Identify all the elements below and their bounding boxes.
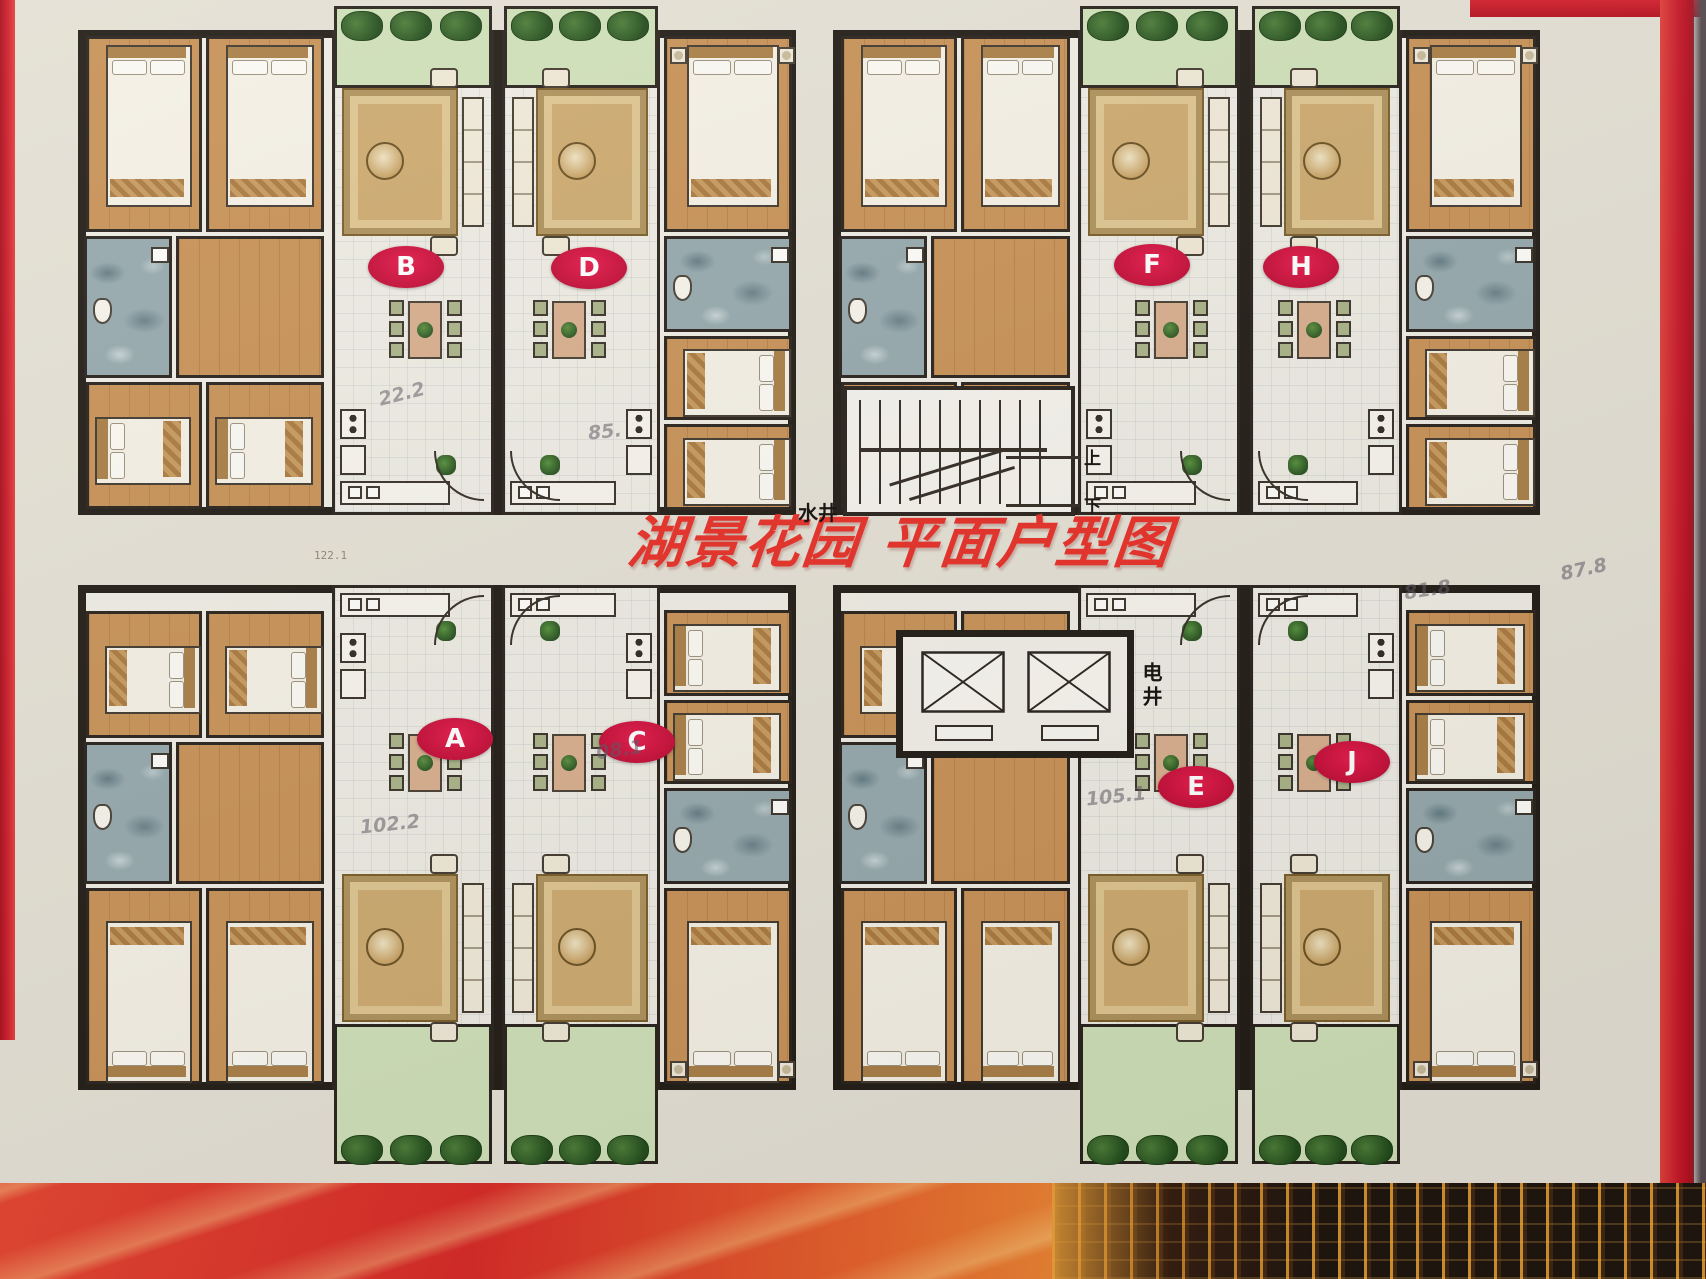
kitchen-cabinet	[1368, 669, 1394, 699]
bed-headboard	[184, 648, 195, 708]
dining-chair	[533, 300, 548, 316]
toilet	[1415, 827, 1434, 853]
sofa	[1260, 97, 1282, 227]
dining-chair	[1193, 733, 1208, 749]
nightstand	[670, 1061, 687, 1078]
bed-blanket	[1434, 927, 1514, 945]
balcony-tree	[1351, 11, 1393, 41]
unit-label-J: J	[1314, 741, 1390, 783]
balcony	[334, 6, 492, 88]
bedroom	[86, 382, 202, 509]
armchair	[542, 1022, 570, 1042]
toilet	[93, 804, 112, 830]
bathroom-sink	[906, 247, 924, 263]
kitchen-sink	[348, 598, 362, 611]
bed-pillow	[110, 423, 125, 450]
bed-pillow	[1022, 60, 1054, 75]
bed-blanket	[1497, 628, 1515, 684]
dining-chair	[1135, 754, 1150, 770]
bed-headboard	[983, 47, 1054, 58]
bed-blanket	[687, 442, 705, 498]
bed-blanket	[687, 353, 705, 409]
bed-pillow	[1477, 60, 1515, 75]
table-plant	[417, 755, 433, 771]
armchair	[1290, 68, 1318, 88]
nightstand	[1521, 1061, 1538, 1078]
dining-chair	[1336, 342, 1351, 358]
dining-chair	[389, 321, 404, 337]
balcony-tree	[511, 1135, 553, 1165]
bedroom	[86, 611, 202, 738]
bed-pillow	[987, 60, 1019, 75]
balcony-tree	[1259, 1135, 1301, 1165]
bed-pillow	[1430, 630, 1445, 657]
bed-pillow	[169, 681, 184, 708]
dining-chair	[533, 321, 548, 337]
nightstand	[778, 1061, 795, 1078]
toilet	[848, 804, 867, 830]
balcony-tree	[1186, 1135, 1228, 1165]
dining-chair	[533, 775, 548, 791]
nightstand	[778, 47, 795, 64]
bed-pillow	[987, 1051, 1019, 1066]
bed-pillow	[1503, 444, 1518, 471]
bed-pillow	[1503, 384, 1518, 411]
toilet	[848, 298, 867, 324]
bathroom	[1406, 236, 1536, 332]
hallway	[176, 236, 324, 378]
toilet	[93, 298, 112, 324]
nightstand	[670, 47, 687, 64]
bathroom	[84, 236, 172, 378]
bed	[981, 45, 1060, 207]
sofa	[512, 883, 534, 1013]
balcony-tree	[341, 11, 383, 41]
elevator-door	[935, 725, 993, 741]
bed	[106, 921, 192, 1083]
balcony	[1080, 1024, 1238, 1164]
kitchen-stove	[1086, 409, 1112, 439]
bed-pillow	[230, 452, 245, 479]
unit-label-B: B	[368, 246, 444, 288]
bed-headboard	[1417, 626, 1428, 686]
armchair	[1176, 854, 1204, 874]
hallway	[176, 742, 324, 884]
bed-pillow	[1503, 473, 1518, 500]
bed-pillow	[271, 1051, 307, 1066]
bed-headboard	[1518, 351, 1529, 411]
dining-chair	[1193, 342, 1208, 358]
balcony-tree	[1186, 11, 1228, 41]
bed-headboard	[108, 47, 186, 58]
coffee-table	[1303, 928, 1341, 966]
bedroom	[961, 36, 1070, 232]
bed-pillow	[232, 60, 268, 75]
coffee-table	[558, 142, 596, 180]
kitchen-cabinet	[340, 445, 366, 475]
bed-pillow	[759, 473, 774, 500]
dining-chair	[389, 775, 404, 791]
dining-chair	[389, 733, 404, 749]
bathroom-sink	[151, 247, 169, 263]
kitchen-sink	[1112, 486, 1126, 499]
stair-down-label: 下	[1084, 492, 1108, 514]
bed-pillow	[867, 60, 902, 75]
bed-pillow	[905, 1051, 940, 1066]
right-red-border	[1660, 0, 1694, 1200]
bedroom	[1406, 610, 1536, 696]
dining-chair	[1193, 300, 1208, 316]
stair-arrow-down	[1006, 504, 1080, 507]
dining-chair	[533, 342, 548, 358]
balcony-tree	[559, 11, 601, 41]
dining-chair	[1278, 321, 1293, 337]
armchair	[1176, 1022, 1204, 1042]
bed-blanket	[109, 650, 127, 706]
bed-headboard	[108, 1066, 186, 1077]
bedroom	[664, 888, 792, 1084]
bed-pillow	[1503, 355, 1518, 382]
balcony-tree	[559, 1135, 601, 1165]
annotation: 87.8	[1558, 545, 1651, 587]
bed	[683, 349, 791, 417]
stair-rail	[859, 448, 1047, 452]
bed	[1430, 45, 1522, 207]
bathroom	[664, 236, 792, 332]
balcony-tree	[440, 11, 482, 41]
right-edge-shadow	[1690, 0, 1706, 1200]
bed	[1415, 713, 1525, 781]
dining-chair	[389, 342, 404, 358]
bed-pillow	[1477, 1051, 1515, 1066]
coffee-table	[1112, 928, 1150, 966]
bed-blanket	[229, 650, 247, 706]
bed-headboard	[1432, 1066, 1516, 1077]
elevator-door	[1041, 725, 1099, 741]
bed-pillow	[867, 1051, 902, 1066]
coffee-table	[1303, 142, 1341, 180]
bed	[1425, 438, 1535, 506]
hallway	[931, 742, 1070, 884]
stair-up-label: 上	[1084, 444, 1108, 466]
bedroom	[1406, 700, 1536, 784]
bed-pillow	[1430, 748, 1445, 775]
dining-chair	[591, 321, 606, 337]
bed	[673, 624, 781, 692]
bed-pillow	[230, 423, 245, 450]
bedroom	[1406, 888, 1536, 1084]
bed-pillow	[110, 452, 125, 479]
stair-treads	[859, 400, 1047, 504]
water-shaft-label: 水井	[798, 497, 848, 523]
table-plant	[417, 322, 433, 338]
kitchen-cabinet	[340, 669, 366, 699]
bed-headboard	[675, 626, 686, 686]
balcony-tree	[1087, 11, 1129, 41]
kitchen-cabinet	[1368, 445, 1394, 475]
bed-pillow	[112, 1051, 147, 1066]
balcony-tree	[1305, 11, 1347, 41]
dining-chair	[1135, 321, 1150, 337]
armchair	[1290, 854, 1318, 874]
balcony-tree	[1136, 1135, 1178, 1165]
bed	[1415, 624, 1525, 692]
bed-blanket	[865, 927, 939, 945]
dining-chair	[447, 300, 462, 316]
bed-pillow	[688, 630, 703, 657]
balcony-tree	[1136, 11, 1178, 41]
bed-pillow	[734, 1051, 772, 1066]
bed-blanket	[110, 927, 184, 945]
balcony	[1252, 1024, 1400, 1164]
stair-arrow-up	[1006, 456, 1080, 459]
balcony-tree	[607, 11, 649, 41]
balcony-tree	[341, 1135, 383, 1165]
balcony-tree	[1087, 1135, 1129, 1165]
bedroom	[206, 611, 324, 738]
dining-chair	[1278, 300, 1293, 316]
bed-pillow	[688, 659, 703, 686]
bed-pillow	[688, 748, 703, 775]
bed-headboard	[228, 47, 308, 58]
balcony-tree	[511, 11, 553, 41]
sofa	[1208, 97, 1230, 227]
balcony-tree	[1351, 1135, 1393, 1165]
bedroom	[206, 888, 324, 1084]
toilet	[673, 275, 692, 301]
bed-pillow	[1436, 60, 1474, 75]
bed	[687, 921, 779, 1083]
kitchen-cabinet	[626, 445, 652, 475]
balcony	[504, 6, 658, 88]
bedroom	[86, 888, 202, 1084]
bed-pillow	[688, 719, 703, 746]
kitchen-stove	[340, 633, 366, 663]
bed-headboard	[774, 440, 785, 500]
balcony	[1080, 6, 1238, 88]
bed	[105, 646, 201, 714]
unit-label-H: H	[1263, 246, 1339, 288]
sofa	[1208, 883, 1230, 1013]
bed-blanket	[985, 927, 1052, 945]
bed-blanket	[753, 717, 771, 773]
building-photo	[1052, 1183, 1706, 1279]
left-red-border	[0, 0, 15, 1040]
bed-blanket	[985, 179, 1052, 197]
bed-pillow	[271, 60, 307, 75]
bed-blanket	[285, 421, 303, 477]
dining-chair	[533, 733, 548, 749]
bedroom	[1406, 336, 1536, 420]
bathroom-sink	[1515, 799, 1533, 815]
bed-pillow	[291, 652, 306, 679]
bed	[106, 45, 192, 207]
bedroom	[841, 888, 957, 1084]
kitchen-sink	[366, 598, 380, 611]
bedroom	[206, 382, 324, 509]
bed-pillow	[169, 652, 184, 679]
table-plant	[561, 322, 577, 338]
bed-blanket	[230, 927, 306, 945]
bed-pillow	[232, 1051, 268, 1066]
bed-pillow	[1430, 659, 1445, 686]
bed	[861, 921, 947, 1083]
bed-blanket	[691, 927, 771, 945]
bed	[683, 438, 791, 506]
poster-title: 湖景花园 平面户型图	[567, 512, 1234, 576]
dining-chair	[447, 321, 462, 337]
table-plant	[1306, 322, 1322, 338]
bed-blanket	[110, 179, 184, 197]
armchair	[1176, 68, 1204, 88]
kitchen-stove	[1368, 633, 1394, 663]
balcony-tree	[390, 1135, 432, 1165]
bedroom	[961, 888, 1070, 1084]
armchair	[542, 68, 570, 88]
bed	[1425, 349, 1535, 417]
bed-headboard	[228, 1066, 308, 1077]
bathroom	[839, 236, 927, 378]
bedroom	[86, 36, 202, 232]
stairs	[843, 386, 1075, 516]
bed-headboard	[1432, 47, 1516, 58]
bed-headboard	[1417, 715, 1428, 775]
sofa	[462, 97, 484, 227]
dining-chair	[591, 300, 606, 316]
coffee-table	[1112, 142, 1150, 180]
unit-label-D: D	[551, 247, 627, 289]
unit-label-A: A	[417, 718, 493, 760]
bed-headboard	[1518, 440, 1529, 500]
bed-pillow	[1436, 1051, 1474, 1066]
balcony-tree	[1259, 11, 1301, 41]
balcony-tree	[390, 11, 432, 41]
bed-pillow	[905, 60, 940, 75]
bathroom-sink	[771, 247, 789, 263]
armchair	[542, 854, 570, 874]
kitchen-stove	[626, 633, 652, 663]
balcony	[1252, 6, 1400, 88]
bed-headboard	[217, 419, 228, 479]
dining-chair	[1278, 775, 1293, 791]
dining-chair	[1336, 300, 1351, 316]
unit-label-F: F	[1114, 244, 1190, 286]
bed-blanket	[753, 628, 771, 684]
bathroom-sink	[771, 799, 789, 815]
coffee-table	[366, 928, 404, 966]
bedroom	[664, 36, 792, 232]
bed-pillow	[693, 1051, 731, 1066]
dining-chair	[447, 342, 462, 358]
bathroom	[839, 742, 927, 884]
sofa	[1260, 883, 1282, 1013]
bathroom	[664, 788, 792, 884]
coffee-table	[366, 142, 404, 180]
bed-pillow	[759, 355, 774, 382]
bed-pillow	[150, 1051, 185, 1066]
electric-shaft-label: 电井	[1140, 662, 1166, 724]
dining-chair	[591, 342, 606, 358]
bedroom	[206, 36, 324, 232]
armchair	[430, 1022, 458, 1042]
balcony-tree	[607, 1135, 649, 1165]
bed-headboard	[863, 47, 941, 58]
toilet	[673, 827, 692, 853]
dining-chair	[1193, 321, 1208, 337]
bed	[226, 45, 314, 207]
armchair	[430, 854, 458, 874]
hallway	[931, 236, 1070, 378]
kitchen-sink	[1094, 598, 1108, 611]
bed	[226, 921, 314, 1083]
bed-pillow	[1022, 1051, 1054, 1066]
dining-chair	[591, 775, 606, 791]
dining-chair	[1135, 300, 1150, 316]
sofa	[512, 97, 534, 227]
bathroom-sink	[1515, 247, 1533, 263]
bed-pillow	[1430, 719, 1445, 746]
bed	[215, 417, 313, 485]
bed-pillow	[759, 384, 774, 411]
bed-headboard	[689, 1066, 773, 1077]
dining-chair	[1135, 733, 1150, 749]
bed-blanket	[1429, 442, 1447, 498]
bed-pillow	[693, 60, 731, 75]
bed-pillow	[112, 60, 147, 75]
elevator-shaft	[1027, 651, 1111, 713]
bathroom	[84, 742, 172, 884]
dining-chair	[1336, 321, 1351, 337]
table-plant	[1163, 322, 1179, 338]
bed-blanket	[865, 179, 939, 197]
bed-pillow	[291, 681, 306, 708]
bed	[687, 45, 779, 207]
dining-chair	[1135, 342, 1150, 358]
kitchen-cabinet	[626, 669, 652, 699]
bedroom	[664, 336, 792, 420]
bedroom	[1406, 424, 1536, 510]
elevator-shaft	[921, 651, 1005, 713]
armchair	[1290, 1022, 1318, 1042]
bed	[225, 646, 323, 714]
balcony	[334, 1024, 492, 1164]
bed-headboard	[97, 419, 108, 479]
bed	[95, 417, 191, 485]
bed-headboard	[774, 351, 785, 411]
kitchen-stove	[340, 409, 366, 439]
balcony-tree	[440, 1135, 482, 1165]
dining-chair	[1278, 733, 1293, 749]
dining-chair	[533, 754, 548, 770]
kitchen-sink	[1112, 598, 1126, 611]
bed-headboard	[306, 648, 317, 708]
balcony	[504, 1024, 658, 1164]
balcony-tree	[1305, 1135, 1347, 1165]
dining-chair	[389, 754, 404, 770]
bed-blanket	[230, 179, 306, 197]
bedroom	[664, 424, 792, 510]
bed-headboard	[983, 1066, 1054, 1077]
bed	[861, 45, 947, 207]
bed-pillow	[759, 444, 774, 471]
bed-pillow	[734, 60, 772, 75]
bedroom	[664, 610, 792, 696]
dining-chair	[447, 775, 462, 791]
dining-chair	[1278, 754, 1293, 770]
toilet	[1415, 275, 1434, 301]
bed	[1430, 921, 1522, 1083]
nightstand	[1413, 1061, 1430, 1078]
